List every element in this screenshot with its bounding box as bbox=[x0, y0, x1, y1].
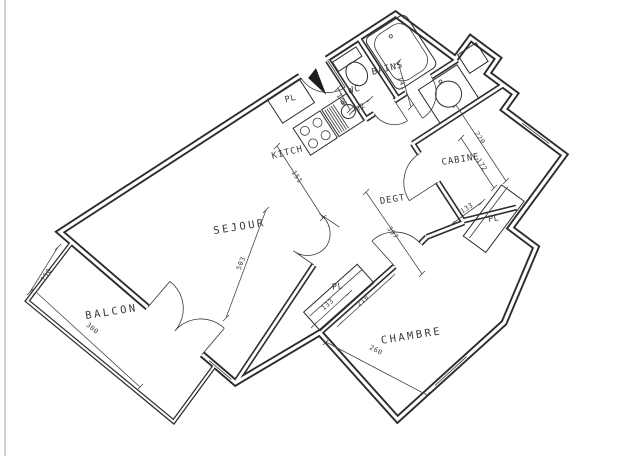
dimension-ticks bbox=[27, 59, 509, 398]
closet-label-cabine: PL bbox=[487, 213, 500, 225]
door-swing-sejour-double bbox=[284, 209, 349, 271]
door-swing-balcony-double bbox=[142, 270, 229, 365]
dimension-label-chambre-pl-133: 133 bbox=[320, 297, 336, 312]
dimension-lines bbox=[27, 59, 509, 398]
room-label-balcon: BALCON bbox=[84, 302, 138, 322]
dimension-label-cabine-172: 172 bbox=[475, 157, 489, 173]
room-label-cabine: CABINE bbox=[441, 152, 481, 168]
room-label-degagement: DEGT bbox=[379, 193, 406, 207]
plan-geometry bbox=[5, 0, 627, 456]
dimension-label-kitchen-151: 151 bbox=[290, 169, 304, 185]
dimension-label-cabine-220: 220 bbox=[473, 130, 487, 146]
floor-plan-page: SEJOUR KITCH BAINS WC CABINE DEGT CHAMBR… bbox=[0, 0, 627, 456]
door-swing-chambre bbox=[372, 219, 424, 269]
closet-label-chambre: PL bbox=[331, 281, 344, 293]
closet-chambre-rail bbox=[304, 269, 368, 316]
labels: SEJOUR KITCH BAINS WC CABINE DEGT CHAMBR… bbox=[39, 60, 500, 357]
floor-plan-canvas: SEJOUR KITCH BAINS WC CABINE DEGT CHAMBR… bbox=[0, 0, 627, 456]
balcony-railing bbox=[14, 213, 229, 453]
entrance-arrow bbox=[306, 68, 331, 98]
room-label-wc: WC bbox=[347, 84, 362, 97]
balcony-railing-inner bbox=[14, 213, 229, 453]
room-label-sejour: SEJOUR bbox=[212, 217, 266, 237]
door-swing-wc bbox=[374, 101, 407, 134]
dimension-label-sejour-503: 503 bbox=[235, 255, 247, 271]
closet-label-entrance: PL bbox=[284, 93, 297, 105]
dimension-label-chambre-210: 210 bbox=[355, 293, 371, 308]
dimension-label-balcon-300: 300 bbox=[84, 321, 100, 336]
room-label-chambre: CHAMBRE bbox=[380, 325, 443, 347]
